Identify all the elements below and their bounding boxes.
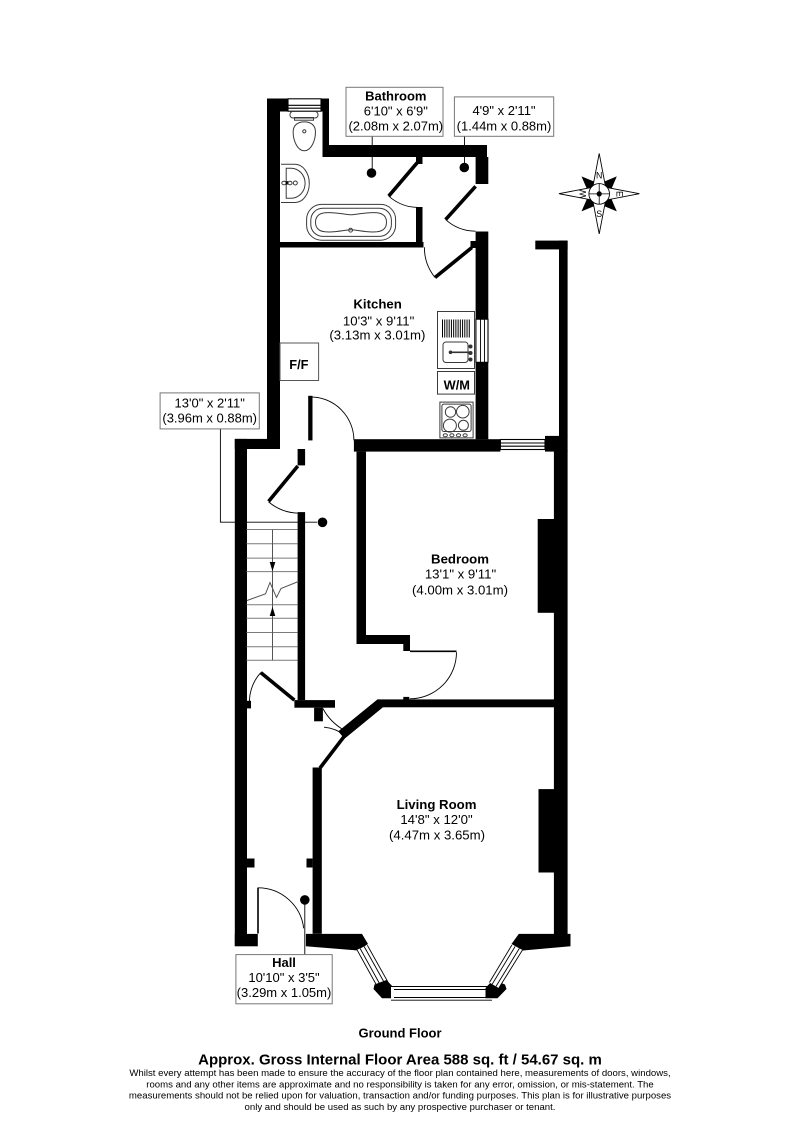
svg-text:Kitchen: Kitchen: [353, 297, 401, 312]
svg-text:Approx. Gross Internal Floor A: Approx. Gross Internal Floor Area 588 sq…: [198, 1052, 602, 1069]
svg-text:6'10" x 6'9": 6'10" x 6'9": [364, 103, 428, 118]
svg-text:10'10" x 3'5": 10'10" x 3'5": [248, 970, 320, 985]
svg-text:F/F: F/F: [289, 357, 308, 372]
svg-text:Whilst every attempt has been: Whilst every attempt has been made to en…: [129, 1068, 670, 1079]
svg-text:(2.08m x 2.07m): (2.08m x 2.07m): [348, 118, 443, 133]
svg-text:13'0" x 2'11": 13'0" x 2'11": [175, 395, 246, 410]
svg-text:(3.96m x 0.88m): (3.96m x 0.88m): [162, 410, 257, 425]
svg-text:Ground Floor: Ground Floor: [358, 1026, 441, 1041]
svg-text:Hall: Hall: [272, 955, 296, 970]
svg-text:rooms and any other items are: rooms and any other items are approximat…: [146, 1079, 653, 1090]
svg-text:only and should be used as suc: only and should be used as such by any p…: [245, 1102, 556, 1113]
svg-text:(3.13m x 3.01m): (3.13m x 3.01m): [329, 327, 425, 342]
svg-text:10'3" x 9'11": 10'3" x 9'11": [343, 313, 415, 328]
svg-text:(1.44m x 0.88m): (1.44m x 0.88m): [457, 119, 552, 134]
svg-text:(3.29m x 1.05m): (3.29m x 1.05m): [237, 985, 332, 1000]
svg-text:Bedroom: Bedroom: [431, 552, 489, 567]
svg-text:W/M: W/M: [444, 378, 470, 393]
svg-text:E: E: [615, 191, 625, 197]
svg-text:Living Room: Living Room: [397, 797, 477, 812]
svg-text:measurements should not be rel: measurements should not be relied upon f…: [129, 1091, 671, 1102]
svg-text:4'9" x 2'11": 4'9" x 2'11": [472, 103, 535, 118]
svg-text:14'8" x 12'0": 14'8" x 12'0": [400, 812, 473, 827]
svg-text:S: S: [596, 209, 602, 219]
svg-text:13'1" x 9'11": 13'1" x 9'11": [425, 567, 497, 582]
svg-text:(4.00m x 3.01m): (4.00m x 3.01m): [412, 582, 508, 597]
svg-text:N: N: [596, 170, 602, 180]
svg-text:(4.47m x 3.65m): (4.47m x 3.65m): [389, 828, 485, 843]
svg-text:W: W: [578, 189, 588, 198]
svg-text:Bathroom: Bathroom: [365, 88, 426, 103]
